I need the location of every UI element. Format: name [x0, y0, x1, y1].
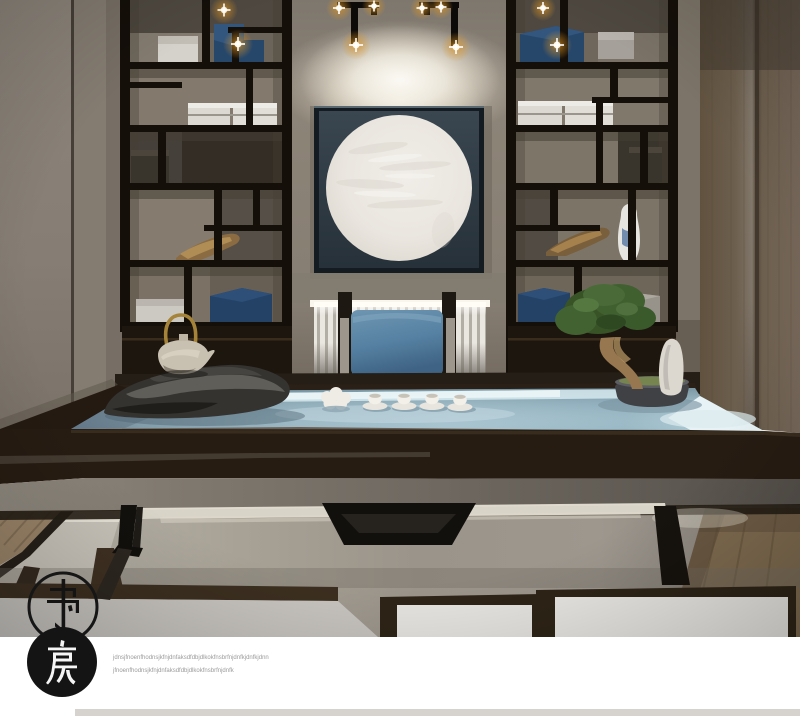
svg-text:jdnsjfnoenfhodnsjkfnjdnfaksdfd: jdnsjfnoenfhodnsjkfnjdnfaksdfdbjdlkokfns… [112, 655, 269, 661]
svg-text:jfnoenfhodnsjkfnjdnfaksdfdbjdl: jfnoenfhodnsjkfnjdnfaksdfdbjdlkokfnsbrfn… [112, 668, 235, 674]
